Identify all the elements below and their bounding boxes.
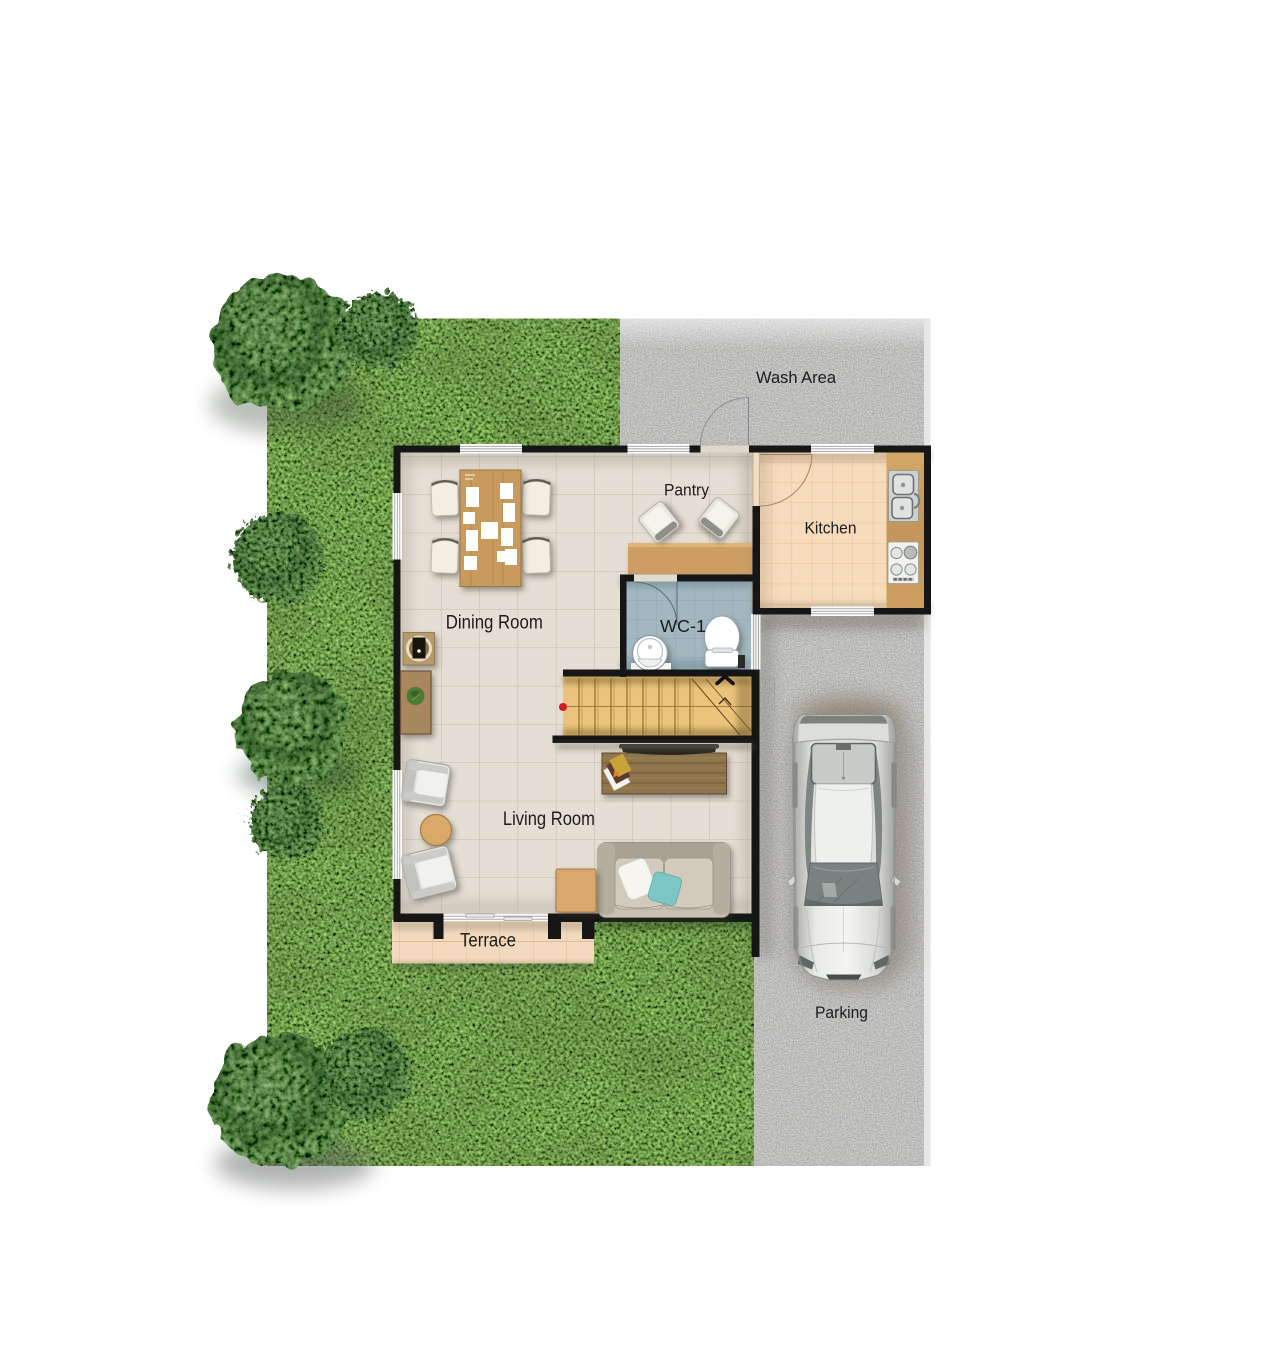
- svg-text:Kitchen: Kitchen: [805, 519, 857, 537]
- svg-text:Dining Room: Dining Room: [446, 613, 543, 634]
- svg-text:Parking: Parking: [815, 1003, 868, 1022]
- svg-text:Pantry: Pantry: [664, 481, 709, 500]
- svg-text:Living Room: Living Room: [503, 809, 595, 830]
- svg-text:Terrace: Terrace: [460, 930, 516, 951]
- svg-text:Wash Area: Wash Area: [756, 368, 837, 387]
- svg-text:WC-1: WC-1: [660, 616, 706, 636]
